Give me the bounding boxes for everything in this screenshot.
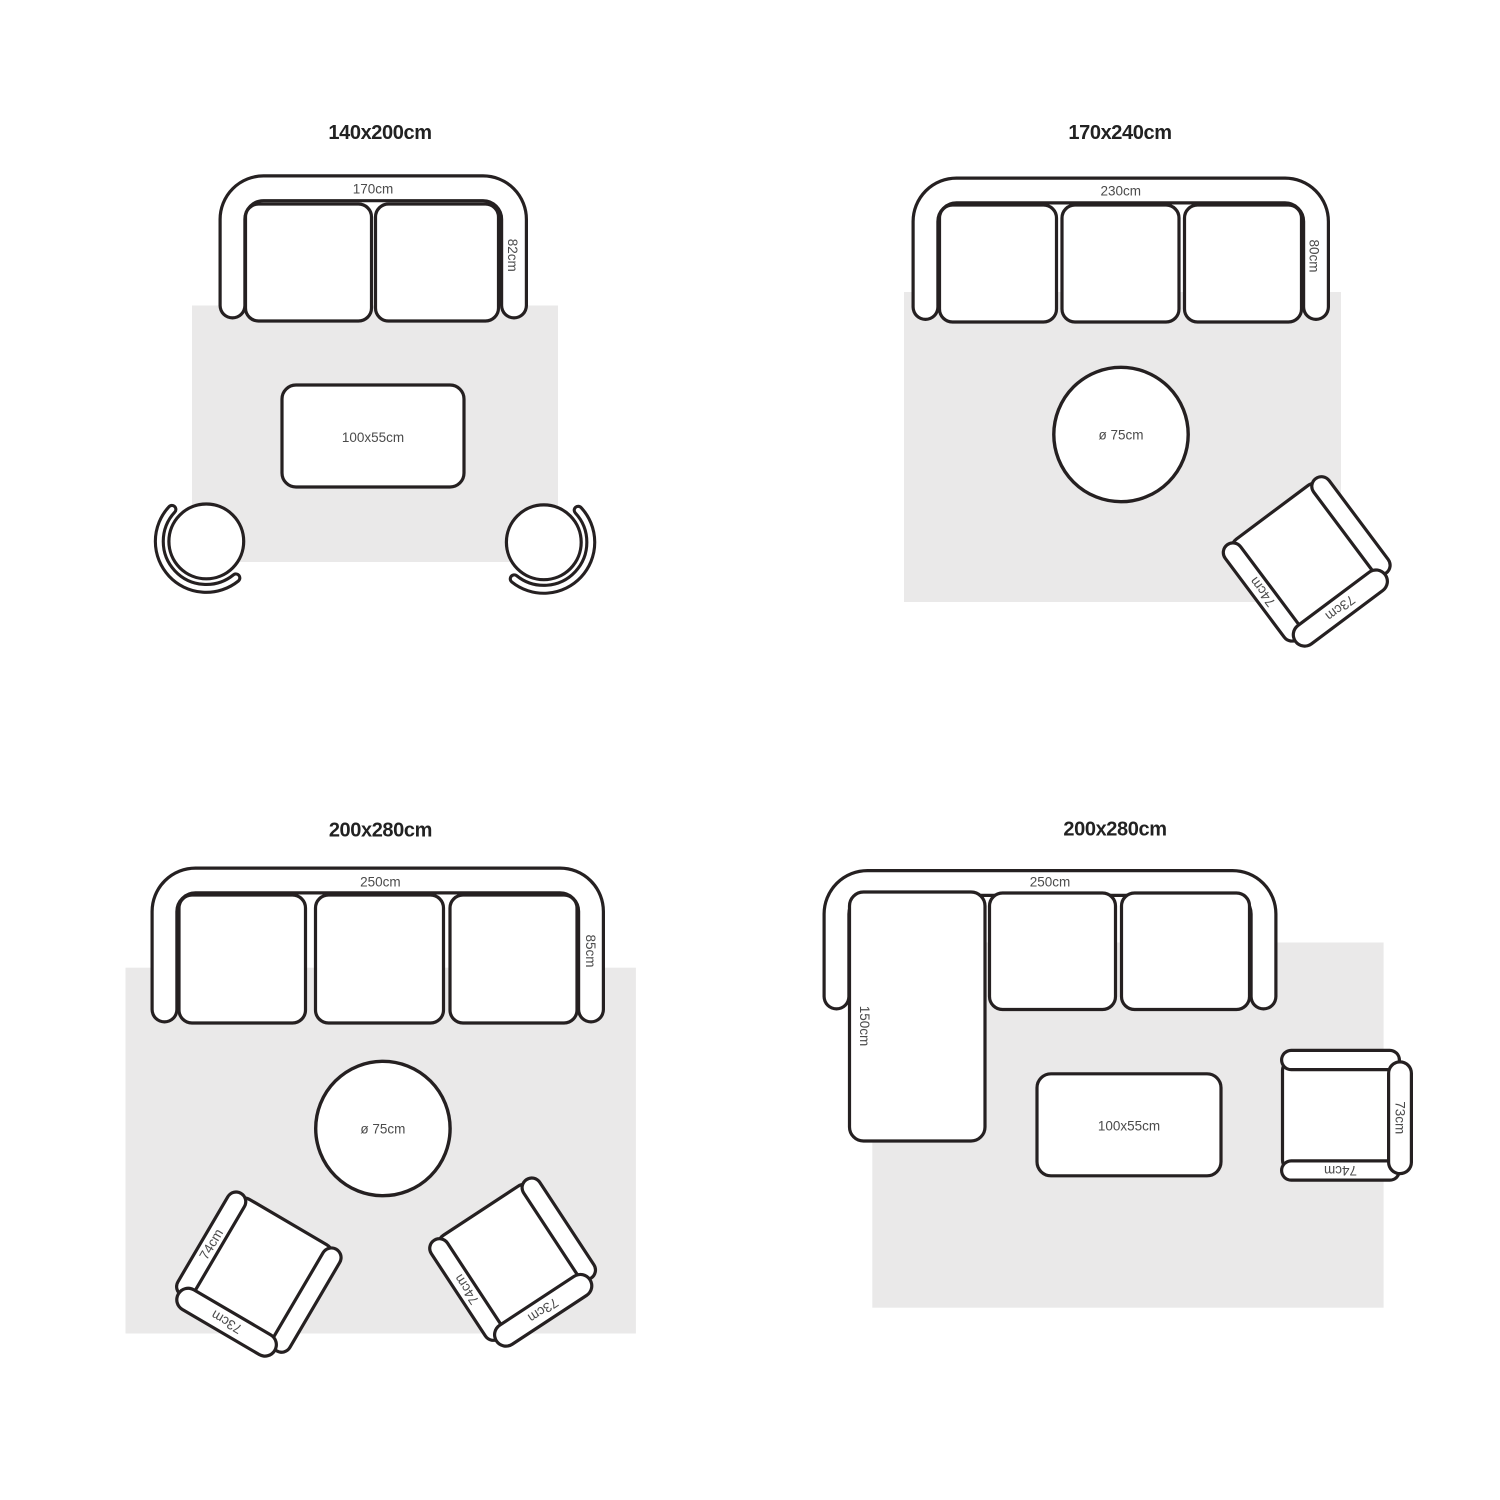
svg-text:100x55cm: 100x55cm (342, 430, 404, 445)
svg-text:200x280cm: 200x280cm (1063, 818, 1166, 840)
svg-text:230cm: 230cm (1101, 183, 1142, 198)
svg-text:250cm: 250cm (1030, 874, 1071, 889)
svg-text:85cm: 85cm (583, 934, 598, 967)
svg-text:200x280cm: 200x280cm (329, 820, 432, 842)
svg-text:250cm: 250cm (360, 874, 401, 889)
svg-text:ø 75cm: ø 75cm (360, 1121, 405, 1136)
svg-text:80cm: 80cm (1306, 239, 1321, 272)
svg-text:100x55cm: 100x55cm (1098, 1118, 1160, 1133)
svg-text:170x240cm: 170x240cm (1068, 122, 1171, 144)
svg-text:140x200cm: 140x200cm (328, 122, 431, 144)
svg-text:150cm: 150cm (857, 1006, 872, 1047)
svg-text:170cm: 170cm (353, 182, 394, 197)
svg-text:82cm: 82cm (505, 239, 520, 272)
svg-text:ø 75cm: ø 75cm (1098, 427, 1143, 442)
